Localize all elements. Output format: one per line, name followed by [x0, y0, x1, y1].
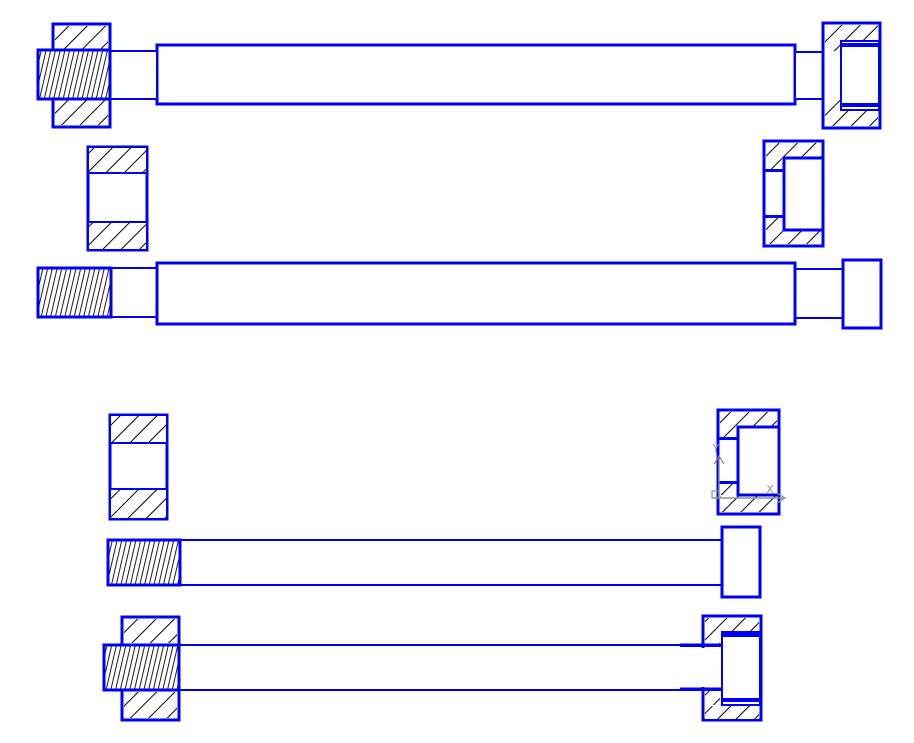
middle-shaft-thread-left[interactable] — [38, 268, 111, 317]
assembled-cap-hatch-top[interactable] — [705, 618, 759, 631]
top-right-nut-thread-line-bottom[interactable] — [842, 103, 878, 107]
assembled-screw-engage-line-top[interactable] — [680, 644, 722, 648]
lower-sleeve-hatch-bottom[interactable] — [110, 489, 167, 519]
top-right-nut-hatch-bottom[interactable] — [825, 111, 878, 126]
assembled-cap-hatch-bottom[interactable] — [705, 706, 759, 719]
assembled-cap-thread-line-top[interactable] — [723, 633, 759, 637]
upper-cap-hatch-left-lower[interactable] — [766, 217, 782, 230]
bottom-screw-body[interactable] — [180, 540, 722, 585]
top-left-bushing-hatch-lower[interactable] — [55, 100, 108, 125]
upper-cap-bore-line-bottom[interactable] — [764, 215, 784, 218]
middle-shaft-body[interactable] — [157, 263, 795, 324]
lower-sleeve-hatch-top[interactable] — [110, 415, 167, 443]
bottom-screw-head[interactable] — [722, 527, 760, 597]
top-right-nut-hatch-left-upper[interactable] — [825, 40, 840, 51]
upper-sleeve-hatch-bottom[interactable] — [88, 222, 147, 250]
top-shaft-body[interactable] — [157, 45, 795, 104]
lower-cap-hatch-left-lower[interactable] — [720, 483, 736, 495]
top-right-nut-hatch-top[interactable] — [825, 25, 878, 40]
top-shaft-neck-left[interactable] — [110, 51, 157, 99]
cad-drawing-canvas[interactable]: Y X — [0, 0, 914, 743]
top-right-nut-hatch-left-lower[interactable] — [825, 100, 840, 111]
assembled-cap-cavity[interactable] — [722, 632, 760, 705]
middle-shaft-head-right[interactable] — [843, 260, 881, 328]
assembled-cap-bore-erase — [700, 648, 722, 687]
upper-sleeve-hatch-top[interactable] — [88, 147, 147, 173]
upper-cap-cavity[interactable] — [784, 158, 823, 230]
upper-cap-hatch-bottom[interactable] — [766, 230, 821, 244]
lower-cap-bore-line-bottom[interactable] — [718, 481, 738, 484]
assembled-bushing-hatch-upper[interactable] — [124, 619, 177, 643]
assembled-screw-thread-left[interactable] — [104, 645, 179, 690]
assembled-cap-hatch-left-lower[interactable] — [705, 690, 720, 705]
middle-shaft-neck-right[interactable] — [795, 269, 843, 318]
top-right-nut-cavity[interactable] — [841, 41, 879, 110]
top-shaft-neck-right[interactable] — [795, 52, 823, 99]
lower-cap-hatch-top[interactable] — [720, 412, 777, 426]
drawing-area[interactable]: Y X — [0, 0, 914, 743]
assembled-cap-thread-line-bottom[interactable] — [723, 698, 759, 702]
assembled-screw-body[interactable] — [179, 645, 703, 690]
top-shaft-thread-left[interactable] — [38, 50, 110, 99]
ucs-x-label: X — [766, 483, 774, 496]
upper-cap-hatch-top[interactable] — [766, 143, 821, 158]
upper-cap-bore-line-top[interactable] — [764, 169, 784, 172]
top-right-nut-thread-line-top[interactable] — [842, 43, 878, 47]
assembled-bushing-hatch-lower[interactable] — [124, 692, 177, 718]
top-left-bushing-hatch-upper[interactable] — [55, 26, 108, 49]
assembled-screw-engage-line-bottom[interactable] — [680, 688, 722, 692]
lower-cap-bore-line-top[interactable] — [718, 437, 738, 440]
ucs-y-label: Y — [712, 442, 720, 455]
bottom-screw-thread-left[interactable] — [108, 540, 180, 585]
middle-shaft-neck-left[interactable] — [111, 268, 157, 317]
